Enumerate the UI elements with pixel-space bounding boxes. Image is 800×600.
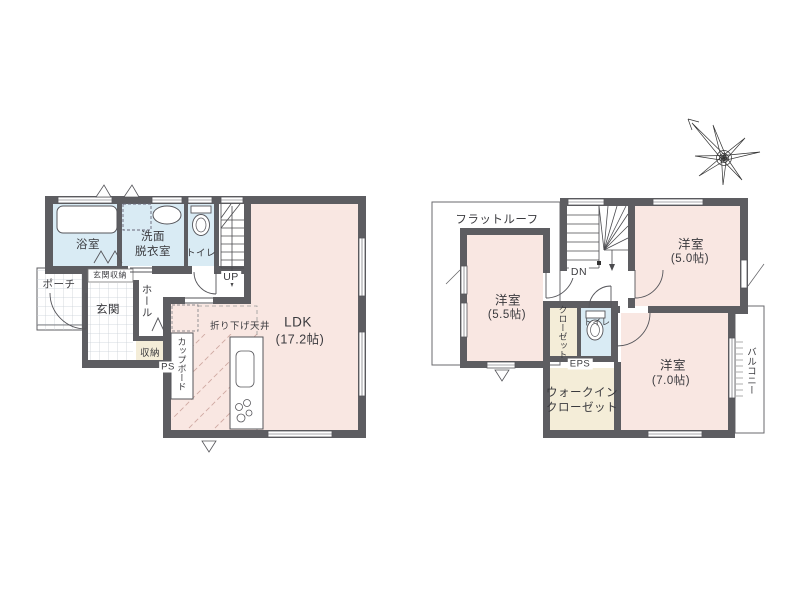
entrance-area [88, 283, 133, 360]
wic-label: ウォークインクローゼット [546, 386, 618, 416]
bedroom-b-size: (5.0帖) [671, 250, 709, 266]
balcony-label: バルコニー [743, 347, 757, 395]
toilet-icon-1f [191, 206, 211, 236]
toilet1f-label: トイレ [186, 245, 216, 259]
stairs-up-label: UP [221, 271, 241, 283]
floor1-plan [37, 185, 366, 452]
floorplan-canvas: 浴室 洗面脱衣室 トイレ UP 玄関収納 ポーチ 玄関 ホール 収納 カップボー… [0, 0, 800, 600]
floorplan-drawing [0, 0, 800, 600]
toilet2f-label: トイレ [583, 316, 610, 328]
vent-triangle [495, 370, 509, 381]
eps-label: EPS [568, 359, 593, 370]
entrance-storage-label: 玄関収納 [93, 270, 127, 281]
porch-label: ポーチ [43, 277, 76, 292]
ps-label: PS [159, 362, 177, 373]
storage-label: 収納 [140, 345, 160, 359]
entrance-label: 玄関 [96, 301, 120, 317]
lowered-ceiling-label: 折り下げ天井 [210, 318, 270, 332]
ldk-size-label: (17.2帖) [276, 329, 325, 348]
cupboard-label: カップボード [176, 337, 189, 391]
bedroom-a-size: (5.5帖) [488, 306, 526, 322]
kitchen-counter [230, 337, 263, 429]
bedroom-c-name: 洋室 [660, 355, 686, 374]
flat-roof-label: フラットルーフ [455, 211, 538, 227]
ldk-name-label: LDK [284, 315, 312, 330]
bath-label: 浴室 [76, 236, 100, 252]
compass-icon [688, 119, 760, 185]
bathtub-icon [57, 206, 117, 233]
sink-icon [153, 206, 181, 224]
stairs-2f [567, 206, 628, 271]
washroom-label: 洗面脱衣室 [135, 230, 171, 260]
bedroom-c-size: (7.0帖) [652, 372, 690, 388]
toilet1f-door-arc [194, 272, 216, 294]
step-marker [152, 318, 164, 331]
hall-label: ホール [140, 284, 155, 319]
stairs-dn-label: DN [569, 266, 589, 278]
closet-label: クローゼット [557, 305, 570, 357]
